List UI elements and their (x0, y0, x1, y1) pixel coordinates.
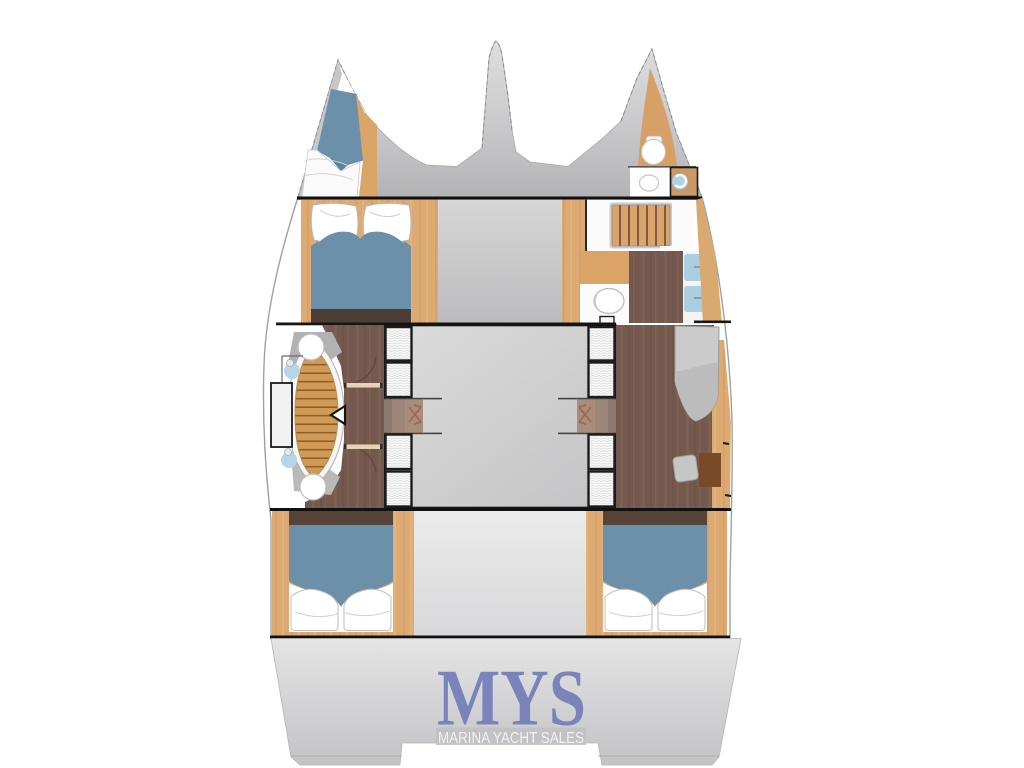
svg-text:MARINA YACHT SALES: MARINA YACHT SALES (438, 730, 584, 747)
